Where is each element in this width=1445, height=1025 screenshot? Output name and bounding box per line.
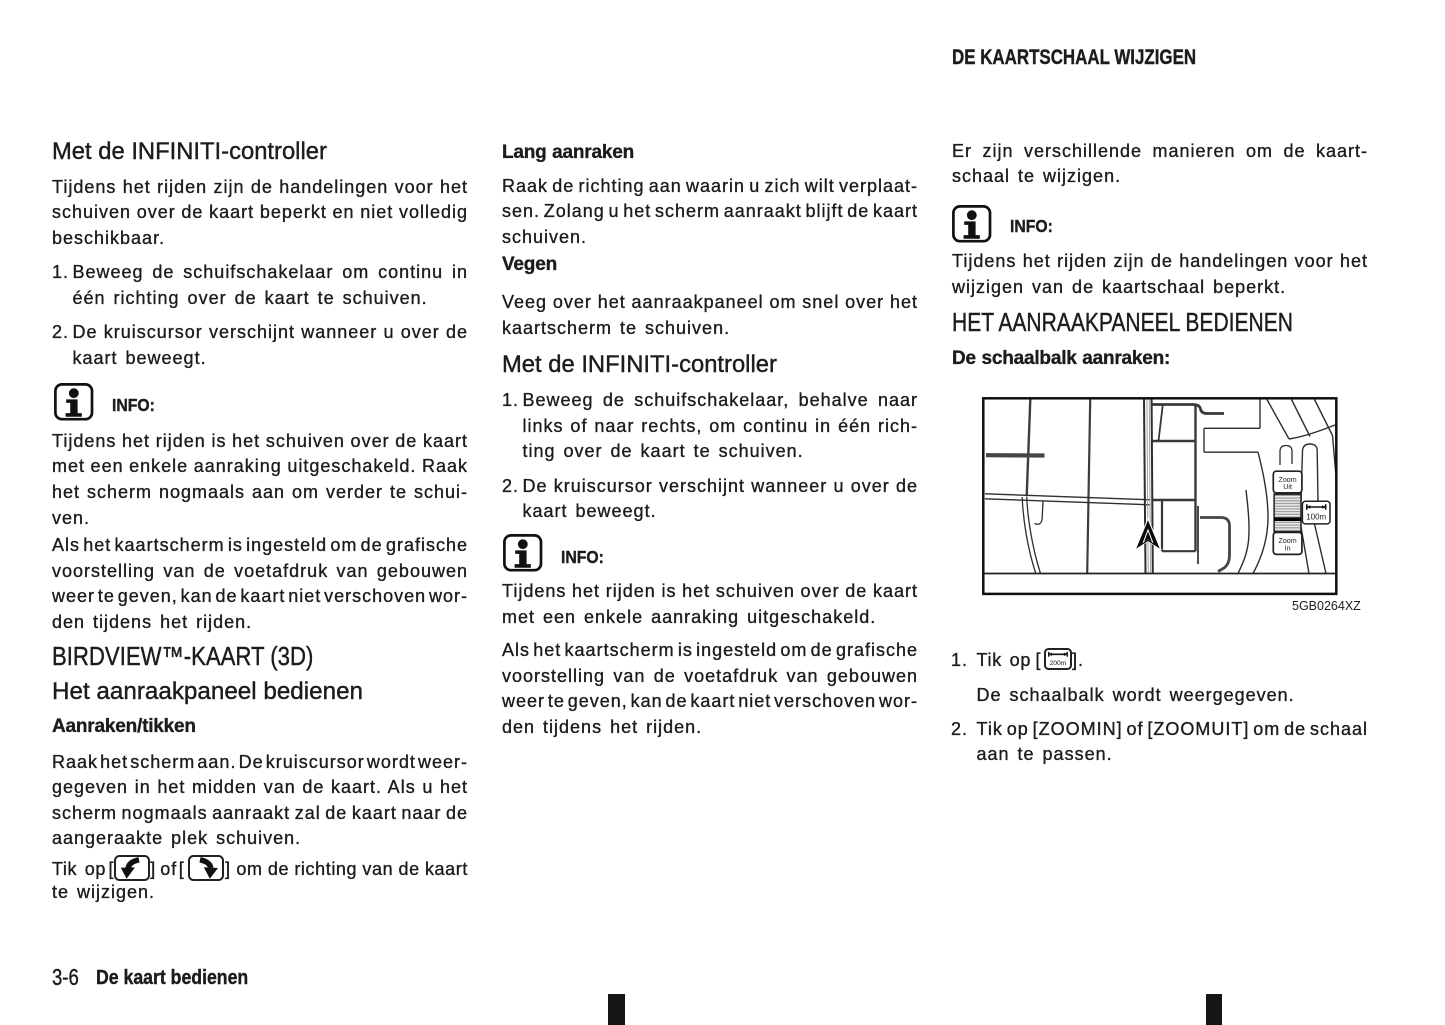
svg-text:200m: 200m (1049, 660, 1066, 667)
svg-text:Uit: Uit (1283, 483, 1292, 491)
svg-text:100m: 100m (1306, 513, 1326, 522)
svg-text:In: In (1285, 545, 1291, 553)
